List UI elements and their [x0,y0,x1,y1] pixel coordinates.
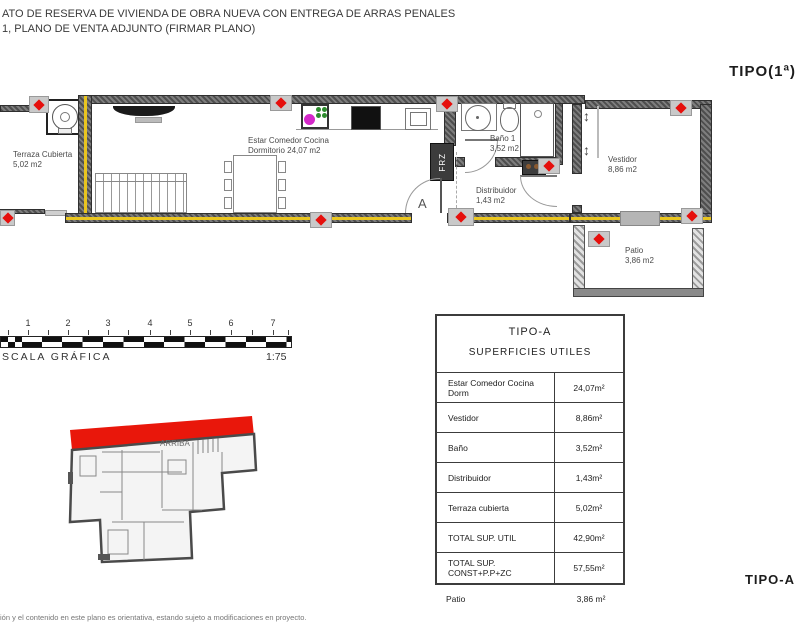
wall [585,100,712,109]
closet-arrow-icon: ↕ [583,142,590,158]
bath-sink-drain [476,116,479,119]
room-label-vestidor: Vestidor 8,86 m2 [608,155,637,175]
room-label-bano: Baño 1 3,52 m2 [490,134,519,154]
room-label-estar: Estar Comedor Cocina Dormitorio 24,07 m2 [248,136,329,156]
scale-tick [48,330,49,335]
graphic-scale-bar [0,336,292,348]
scale-number: 4 [147,318,152,328]
row-label: Distribuidor [437,463,554,492]
plan-sheet: ATO DE RESERVA DE VIVIENDA DE OBRA NUEVA… [0,0,800,640]
extractor-hood-icon [113,106,175,116]
scale-tick [28,330,29,335]
scale-tick [210,330,211,335]
wall [572,205,582,213]
plant-icon [322,113,327,118]
table-row: Baño 3,52m² [437,433,623,463]
sofa-backrest-line [95,181,187,182]
entry-door-label: A [418,196,427,211]
red-diamond-icon [593,233,604,244]
wall-marker [588,231,610,247]
red-diamond-icon [2,212,13,223]
scale-number: 1 [25,318,30,328]
row-value: 57,55m² [554,553,623,583]
red-diamond-icon [543,160,554,171]
entry-door-leaf [440,178,442,213]
scale-number: 3 [105,318,110,328]
wall-marker [538,158,560,174]
plant-icon [316,107,321,112]
room-area: 1,43 m2 [476,196,516,206]
chair [224,161,232,173]
room-area: Dormitorio 24,07 m2 [248,146,329,156]
kitchen-sink-basin [410,112,427,126]
dining-table [233,155,277,213]
table-row: Distribuidor 1,43m² [437,463,623,493]
chair [278,179,286,191]
room-area: 5,02 m2 [13,160,72,170]
scale-tick [68,330,69,335]
keyplan-window [68,472,73,484]
patio-door-sill [620,211,660,226]
scale-ratio: 1:75 [266,351,286,363]
cabinet-knob [526,164,531,169]
scale-tick [88,330,89,335]
chair [278,161,286,173]
wall [555,103,563,165]
row-label: Vestidor [437,403,554,432]
fridge: FRZ [430,143,454,181]
room-area: 8,86 m2 [608,165,637,175]
red-diamond-icon [33,99,44,110]
wall-marker [0,210,15,226]
scale-tick [288,330,289,335]
terraza-window [45,210,67,216]
key-plan: ARRIBA [62,412,262,564]
red-diamond-icon [675,102,686,113]
table-row: TOTAL SUP. CONST+P.P+ZC 57,55m² [437,553,623,583]
row-label: Baño [437,433,554,462]
wall-marker [448,208,474,226]
table-row: Terraza cubierta 5,02m² [437,493,623,523]
cooktop-icon [351,106,381,130]
row-value: 3,86 m² [557,588,625,610]
surfaces-table: TIPO-A SUPERFICIES UTILES Estar Comedor … [435,314,625,585]
row-value: 5,02m² [554,493,623,522]
wall [700,104,712,219]
wall-marker [681,208,703,224]
wall [692,228,704,292]
room-name: Patio [625,246,654,256]
wall [573,225,585,292]
room-label-terraza: Terraza Cubierta 5,02 m2 [13,150,72,170]
building-outline [70,434,256,562]
room-name: Baño 1 [490,134,519,144]
plant-icon [322,107,327,112]
disclaimer-text: ión y el contenido en este plano es orie… [0,613,306,622]
scale-number: 7 [270,318,275,328]
stairs-label: ARRIBA [160,439,190,448]
wall [573,288,704,297]
scale-bar-row [1,342,291,347]
red-diamond-icon [686,210,697,221]
table-title: TIPO-A [437,316,623,338]
table-header: TIPO-A SUPERFICIES UTILES [437,316,623,373]
table-row-patio: Patio 3,86 m² [435,588,625,610]
red-diamond-icon [275,97,286,108]
row-value: 42,90m² [554,523,623,552]
room-area: 3,52 m2 [490,144,519,154]
room-label-patio: Patio 3,86 m2 [625,246,654,266]
scale-tick [108,330,109,335]
fridge-label: FRZ [438,153,447,172]
wall [78,95,92,223]
scale-tick [190,330,191,335]
row-label: Estar Comedor Cocina Dorm [437,373,554,402]
row-label: TOTAL SUP. UTIL [437,523,554,552]
keyplan-window [98,554,110,560]
sofa [95,173,187,213]
scale-tick [128,330,129,335]
room-name: Estar Comedor Cocina [248,136,329,146]
row-value: 24,07m² [554,373,623,402]
scale-number: 6 [228,318,233,328]
scale-tick [170,330,171,335]
closet-front-line [597,106,599,158]
scale-number: 2 [65,318,70,328]
scale-tick [252,330,253,335]
red-diamond-icon [441,98,452,109]
document-title-line2: 1, PLANO DE VENTA ADJUNTO (FIRMAR PLANO) [2,23,255,35]
type-label-bottom: TIPO-A [745,572,795,587]
red-diamond-icon [455,211,466,222]
scale-tick [150,330,151,335]
chair [224,179,232,191]
wall-marker [270,95,292,111]
row-value: 8,86m² [554,403,623,432]
scale-label: SCALA GRÁFICA [2,351,111,363]
wall [65,213,412,223]
chair [278,197,286,209]
scale-tick [273,330,274,335]
wall-marker [310,212,332,228]
type-label-top: TIPO(1ª) [729,63,796,80]
entry-axis-dashed-line [456,152,458,208]
room-name: Distribuidor [476,186,516,196]
toilet-cistern [503,103,516,109]
chair [224,197,232,209]
washing-machine-drum-icon [60,112,70,122]
wall-marker [436,96,458,112]
table-row: Vestidor 8,86m² [437,403,623,433]
wall-marker [670,100,692,116]
shower-drain-icon [534,110,542,118]
scale-number: 5 [187,318,192,328]
wall [572,104,582,174]
row-value: 1,43m² [554,463,623,492]
table-row: Estar Comedor Cocina Dorm 24,07m² [437,373,623,403]
toilet-icon [500,107,519,132]
plant-icon [316,113,321,118]
document-title-line1: ATO DE RESERVA DE VIVIENDA DE OBRA NUEVA… [2,8,455,20]
room-name: Vestidor [608,155,637,165]
decor-bowl-icon [304,114,315,125]
extractor-hood-base [135,117,162,123]
vestidor-door-arc [520,176,557,207]
wall-marker [29,96,49,113]
red-diamond-icon [315,214,326,225]
closet-arrow-icon: ↕ [583,108,590,124]
row-label: Patio [435,588,557,610]
room-label-distribuidor: Distribuidor 1,43 m2 [476,186,516,206]
row-label: Terraza cubierta [437,493,554,522]
table-subtitle: SUPERFICIES UTILES [437,338,623,358]
scale-tick [8,330,9,335]
row-value: 3,52m² [554,433,623,462]
room-name: Terraza Cubierta [13,150,72,160]
table-row: TOTAL SUP. UTIL 42,90m² [437,523,623,553]
scale-tick [231,330,232,335]
scale-bar-subdivisions [1,337,29,347]
washing-machine-base [58,128,72,134]
room-area: 3,86 m2 [625,256,654,266]
row-label: TOTAL SUP. CONST+P.P+ZC [437,553,554,583]
